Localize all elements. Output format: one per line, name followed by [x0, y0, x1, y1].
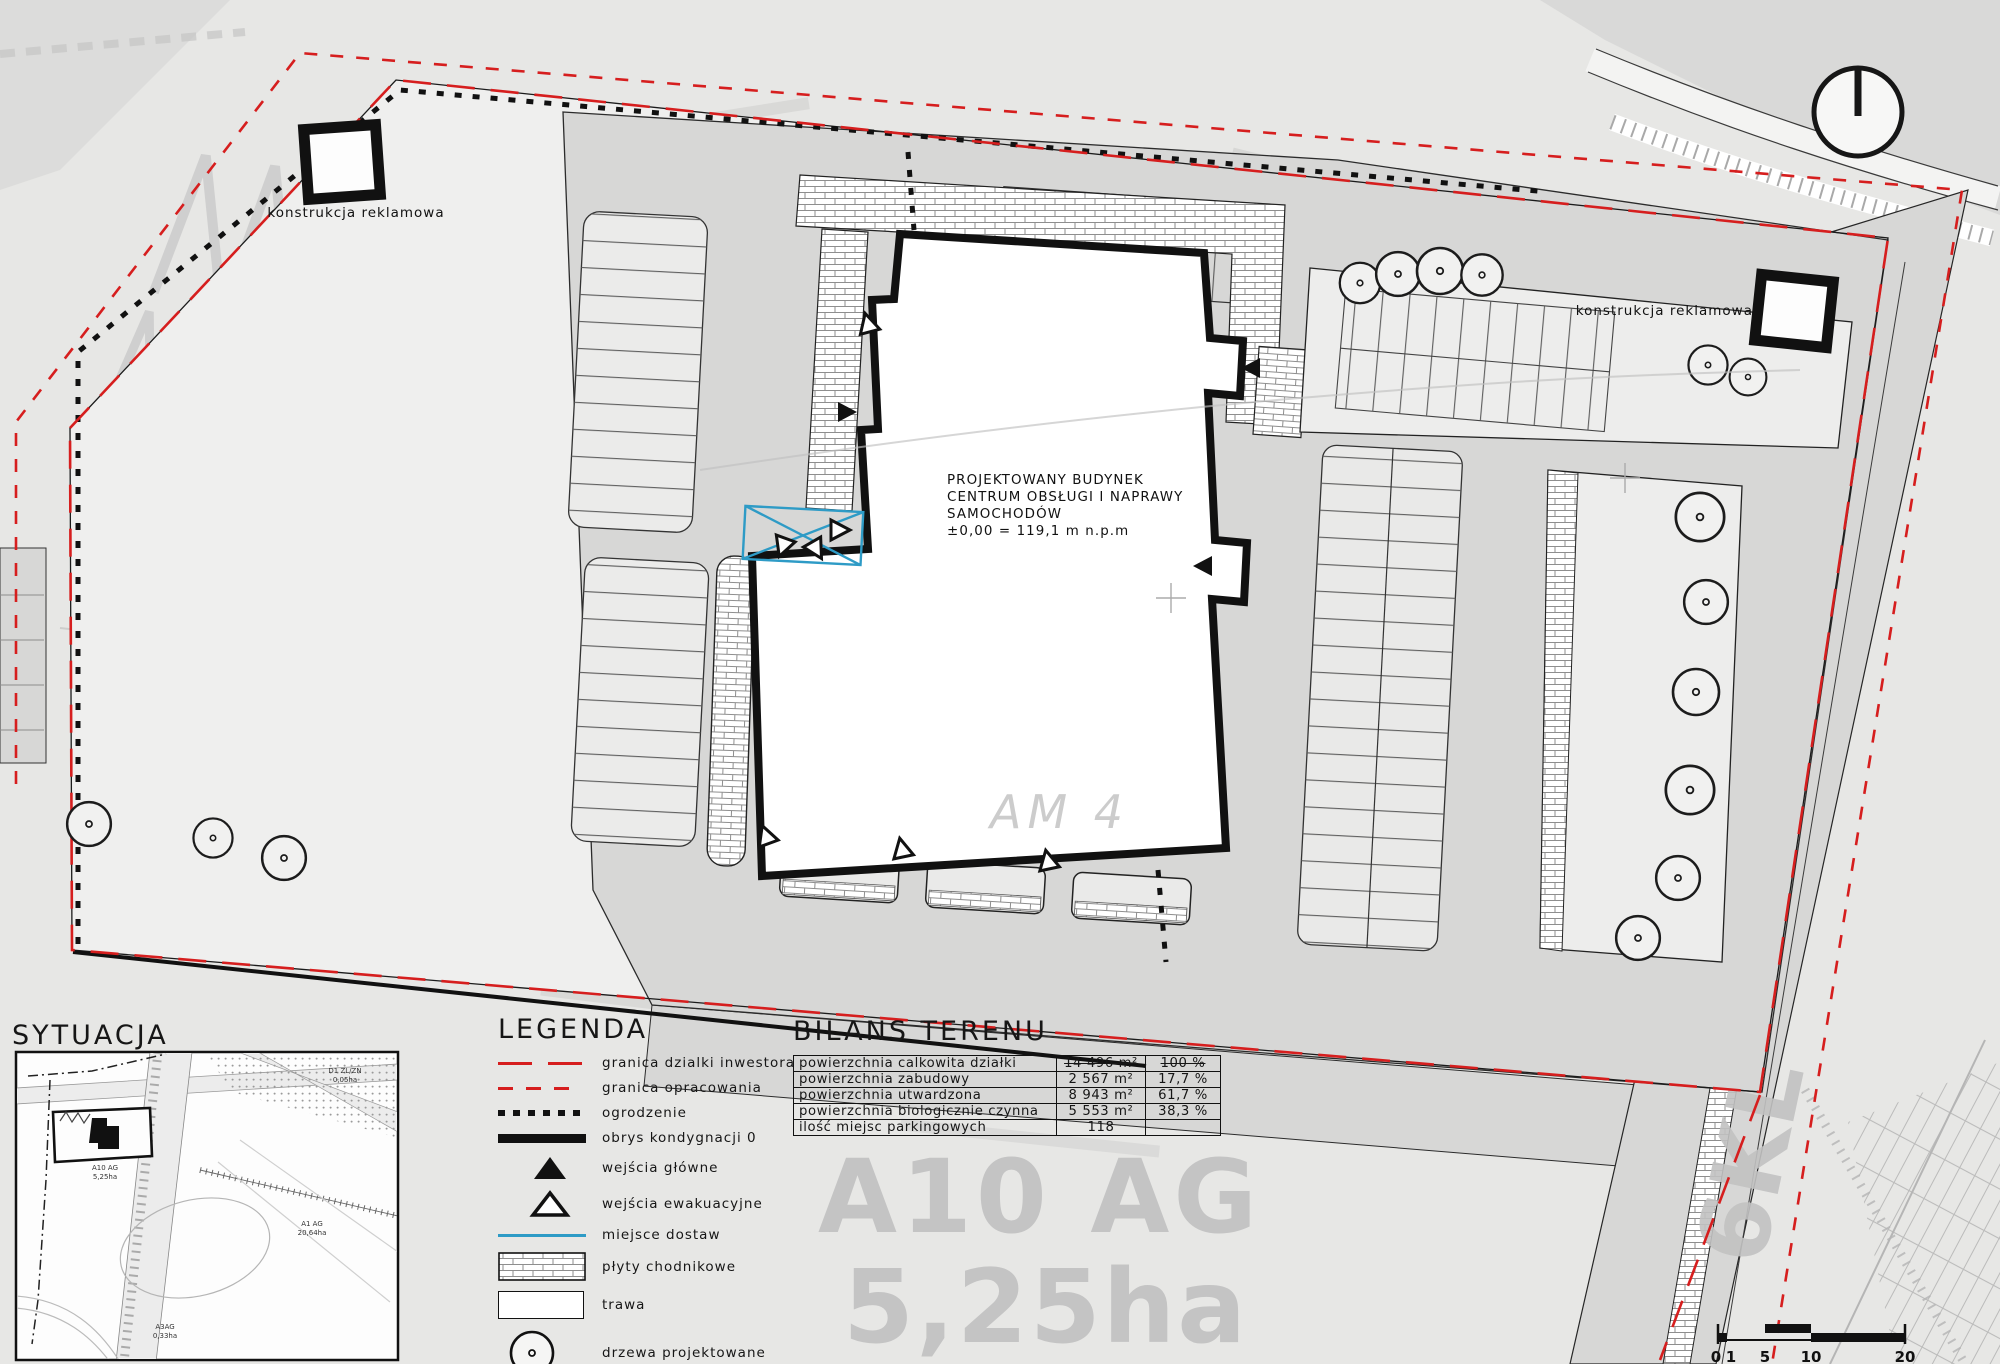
situation-title: SYTUACJA: [12, 1020, 169, 1051]
paving-swatch-icon: [498, 1252, 602, 1282]
svg-text:CENTRUM OBSŁUGI I NAPRAWY: CENTRUM OBSŁUGI I NAPRAWY: [947, 490, 1183, 505]
black-dots-icon: [498, 1110, 602, 1116]
svg-text:0,33ha: 0,33ha: [153, 1332, 177, 1340]
svg-text:5: 5: [1760, 1348, 1770, 1364]
svg-text:20: 20: [1895, 1348, 1916, 1364]
ad-structure-west-label: konstrukcja reklamowa: [267, 205, 444, 221]
legend: LEGENDA granica dzialki inwestora granic…: [498, 1014, 798, 1364]
short-red-dash-icon: [498, 1087, 602, 1090]
svg-text:A10 AG: A10 AG: [92, 1164, 118, 1172]
svg-text:A3AG: A3AG: [155, 1323, 174, 1331]
svg-text:5,25ha: 5,25ha: [843, 1248, 1248, 1364]
grass-swatch-icon: [498, 1291, 602, 1319]
svg-text:1: 1: [1726, 1348, 1736, 1364]
svg-text:0: 0: [1711, 1348, 1721, 1364]
table-row: powierzchnia biologicznie czynna 5 553 m…: [794, 1104, 1221, 1120]
svg-text:5,25ha: 5,25ha: [93, 1173, 117, 1181]
situation-inset-map: A10 AG 5,25ha A1 AG 20,64ha A3AG 0,33ha …: [16, 1052, 398, 1362]
legend-item-study-boundary: granica opracowania: [498, 1080, 798, 1096]
legend-item-grass: trawa: [498, 1291, 798, 1319]
land-balance-title: BILANS TERENU: [793, 1016, 1221, 1047]
ad-structure-east-label: konstrukcja reklamowa: [1576, 303, 1753, 319]
east-island: [1540, 470, 1742, 962]
west-road-stub: [0, 548, 46, 763]
legend-item-floor-outline: obrys kondygnacji 0: [498, 1130, 798, 1146]
legend-item-main-entrances: wejścia główne: [498, 1155, 798, 1181]
site-plan-sheet: 119,20 6KL: [0, 0, 2000, 1364]
svg-text:A10 AG: A10 AG: [818, 1138, 1261, 1257]
table-row: powierzchnia utwardzona 8 943 m² 61,7 %: [794, 1088, 1221, 1104]
svg-text:20,64ha: 20,64ha: [298, 1229, 327, 1237]
legend-item-evacuation-exits: wejścia ewakuacyjne: [498, 1190, 798, 1218]
table-row: powierzchnia zabudowy 2 567 m² 17,7 %: [794, 1072, 1221, 1088]
site-plan-drawing: 119,20 6KL: [0, 0, 2000, 1364]
table-row: powierzchnia calkowita działki 14 496 m²…: [794, 1056, 1221, 1072]
svg-text:SAMOCHODÓW: SAMOCHODÓW: [947, 504, 1062, 522]
blue-line-icon: [498, 1234, 602, 1237]
filled-triangle-icon: [498, 1155, 602, 1181]
table-row: ilość miejsc parkingowych 118: [794, 1120, 1221, 1136]
legend-title: LEGENDA: [498, 1014, 798, 1045]
parking-west-upper: [568, 211, 708, 533]
legend-item-investor-boundary: granica dzialki inwestora: [498, 1055, 798, 1071]
svg-text:A1 AG: A1 AG: [301, 1220, 323, 1228]
legend-item-delivery: miejsce dostaw: [498, 1227, 798, 1243]
svg-text:AM 4: AM 4: [987, 785, 1129, 839]
svg-text:0,05ha: 0,05ha: [333, 1076, 357, 1084]
land-balance-table: powierzchnia calkowita działki 14 496 m²…: [793, 1055, 1221, 1136]
parking-west-lower: [571, 557, 710, 847]
black-bar-icon: [498, 1134, 602, 1143]
svg-text:D1 ZL/ZN: D1 ZL/ZN: [328, 1067, 361, 1075]
svg-text:10: 10: [1801, 1348, 1822, 1364]
svg-text:±0,00 = 119,1 m n.p.m: ±0,00 = 119,1 m n.p.m: [947, 524, 1129, 539]
long-red-dash-icon: [498, 1062, 602, 1065]
outline-triangle-icon: [498, 1190, 602, 1218]
land-balance: BILANS TERENU powierzchnia calkowita dzi…: [793, 1016, 1221, 1136]
legend-item-paving: płyty chodnikowe: [498, 1252, 798, 1282]
tree-icon: [498, 1328, 602, 1364]
parking-east: [1297, 445, 1463, 952]
legend-item-fence: ogrodzenie: [498, 1105, 798, 1121]
legend-item-trees: drzewa projektowane: [498, 1328, 798, 1364]
north-indicator: [1814, 68, 1902, 156]
svg-text:PROJEKTOWANY BUDYNEK: PROJEKTOWANY BUDYNEK: [947, 473, 1144, 488]
